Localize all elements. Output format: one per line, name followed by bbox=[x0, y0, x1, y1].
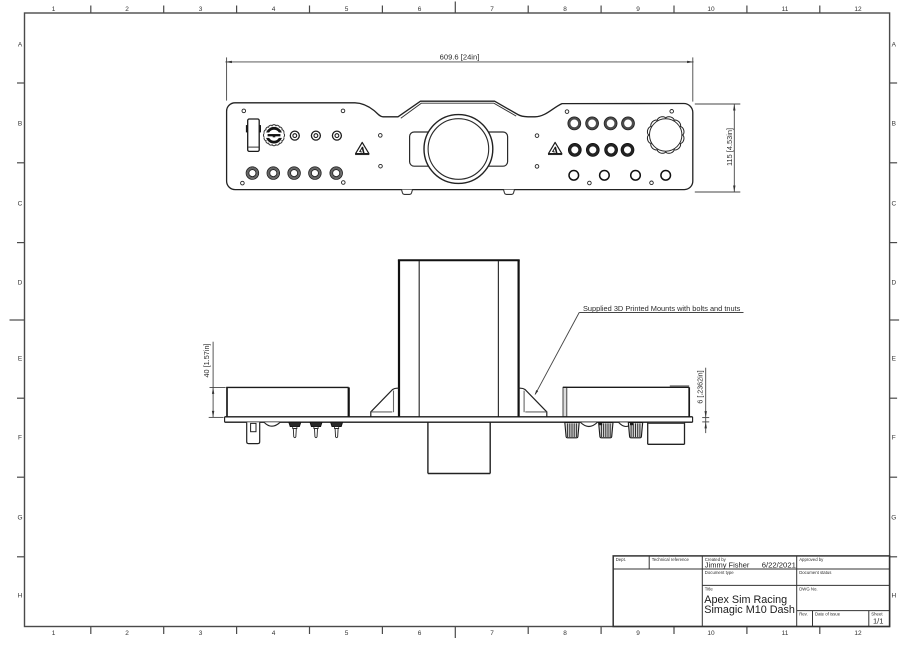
svg-text:11: 11 bbox=[782, 630, 789, 637]
svg-text:6: 6 bbox=[418, 630, 422, 637]
svg-text:6/22/2021: 6/22/2021 bbox=[762, 561, 796, 570]
svg-text:2: 2 bbox=[125, 630, 129, 637]
svg-text:40 [1.57in]: 40 [1.57in] bbox=[202, 343, 211, 377]
svg-text:F: F bbox=[18, 434, 22, 441]
svg-text:5: 5 bbox=[345, 6, 349, 13]
svg-text:Document type: Document type bbox=[705, 570, 735, 575]
svg-text:H: H bbox=[18, 592, 23, 599]
svg-text:G: G bbox=[17, 514, 22, 521]
svg-text:Title: Title bbox=[705, 587, 714, 592]
svg-text:Date of issue: Date of issue bbox=[815, 612, 841, 617]
svg-text:A: A bbox=[18, 41, 23, 48]
svg-text:9: 9 bbox=[636, 6, 640, 13]
svg-text:6: 6 bbox=[418, 6, 422, 13]
svg-text:H: H bbox=[891, 592, 896, 599]
svg-text:10: 10 bbox=[707, 6, 715, 13]
svg-text:8: 8 bbox=[563, 6, 567, 13]
svg-text:Simagic M10 Dash: Simagic M10 Dash bbox=[704, 604, 795, 616]
svg-text:7: 7 bbox=[490, 630, 494, 637]
svg-text:E: E bbox=[892, 355, 897, 362]
svg-text:G: G bbox=[891, 514, 896, 521]
svg-text:2: 2 bbox=[125, 6, 129, 13]
svg-text:Jimmy Fisher: Jimmy Fisher bbox=[705, 561, 750, 570]
svg-text:Supplied 3D Printed Mounts wit: Supplied 3D Printed Mounts with bolts an… bbox=[583, 304, 741, 313]
svg-text:B: B bbox=[18, 120, 22, 127]
svg-text:Document status: Document status bbox=[799, 570, 831, 575]
svg-text:D: D bbox=[891, 279, 896, 286]
svg-text:C: C bbox=[18, 200, 23, 207]
svg-text:Rev.: Rev. bbox=[799, 612, 808, 617]
svg-text:Dept.: Dept. bbox=[616, 557, 626, 562]
svg-text:DWG No.: DWG No. bbox=[799, 587, 817, 592]
svg-text:115 [4.53in]: 115 [4.53in] bbox=[725, 128, 734, 166]
svg-text:C: C bbox=[891, 200, 896, 207]
svg-text:F: F bbox=[892, 434, 896, 441]
svg-text:609.6 [24in]: 609.6 [24in] bbox=[440, 52, 480, 61]
svg-text:1: 1 bbox=[52, 630, 56, 637]
svg-text:E: E bbox=[18, 355, 23, 362]
svg-text:6 [.2362in]: 6 [.2362in] bbox=[697, 370, 705, 403]
svg-text:A: A bbox=[892, 41, 897, 48]
svg-text:12: 12 bbox=[854, 630, 862, 637]
svg-text:10: 10 bbox=[707, 630, 715, 637]
svg-text:3: 3 bbox=[199, 6, 203, 13]
svg-text:4: 4 bbox=[272, 630, 276, 637]
svg-text:11: 11 bbox=[782, 6, 789, 13]
svg-text:8: 8 bbox=[563, 630, 567, 637]
svg-text:9: 9 bbox=[636, 630, 640, 637]
svg-text:D: D bbox=[18, 279, 23, 286]
svg-text:3: 3 bbox=[199, 630, 203, 637]
svg-text:1: 1 bbox=[52, 6, 56, 13]
svg-text:1/1: 1/1 bbox=[873, 617, 883, 626]
svg-text:5: 5 bbox=[345, 630, 349, 637]
svg-text:Technical reference: Technical reference bbox=[652, 557, 690, 562]
svg-text:Approved by: Approved by bbox=[799, 557, 824, 562]
svg-text:12: 12 bbox=[854, 6, 862, 13]
svg-text:4: 4 bbox=[272, 6, 276, 13]
svg-text:7: 7 bbox=[490, 6, 494, 13]
svg-text:B: B bbox=[892, 120, 896, 127]
